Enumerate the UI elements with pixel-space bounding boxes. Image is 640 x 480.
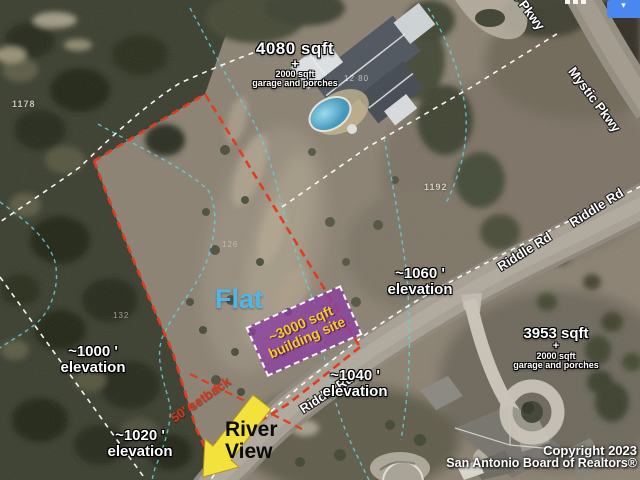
aerial-map-canvas[interactable]: 4080 sqft + 2000 sqft garage and porches…	[0, 0, 640, 480]
top-edge-mark	[565, 0, 570, 4]
parcel-number-1192: 1192	[424, 182, 448, 192]
map-expand-button[interactable]: ▾	[607, 0, 640, 18]
elevation-value: ~1060 '	[368, 266, 472, 282]
top-edge-mark	[581, 0, 586, 4]
top-edge-mark	[573, 0, 578, 4]
elevation-word: elevation	[88, 444, 192, 460]
river-view-label: River View	[225, 419, 278, 463]
parcel-number-132: 132	[113, 311, 129, 320]
copyright-line2: San Antonio Board of Realtors®	[446, 457, 637, 470]
river-view-line2: View	[225, 441, 278, 463]
area-label-3953-extra2: garage and porches	[503, 361, 609, 370]
chevron-down-icon: ▾	[621, 0, 626, 10]
elevation-label-1040: ~1040 ' elevation	[303, 368, 407, 400]
plus-sign: +	[240, 58, 350, 70]
elevation-value: ~1020 '	[88, 428, 192, 444]
house-number-label: 12 80	[344, 74, 369, 83]
elevation-word: elevation	[41, 360, 145, 376]
elevation-word: elevation	[303, 384, 407, 400]
elevation-label-1000: ~1000 ' elevation	[41, 344, 145, 376]
elevation-label-1020: ~1020 ' elevation	[88, 428, 192, 460]
elevation-label-1060: ~1060 ' elevation	[368, 266, 472, 298]
area-label-4080-extra2: garage and porches	[240, 79, 350, 88]
elevation-value: ~1000 '	[41, 344, 145, 360]
area-label-3953: 3953 sqft + 2000 sqft garage and porches	[503, 326, 609, 371]
river-view-line1: River	[225, 419, 278, 441]
flat-area-label: Flat	[215, 284, 263, 315]
area-label-4080: 4080 sqft + 2000 sqft garage and porches	[240, 40, 350, 88]
elevation-word: elevation	[368, 282, 472, 298]
elevation-value: ~1040 '	[303, 368, 407, 384]
parcel-number-1178: 1178	[12, 99, 36, 109]
copyright-notice: Copyright 2023 San Antonio Board of Real…	[446, 444, 637, 470]
parcel-number-126: 126	[222, 240, 238, 249]
